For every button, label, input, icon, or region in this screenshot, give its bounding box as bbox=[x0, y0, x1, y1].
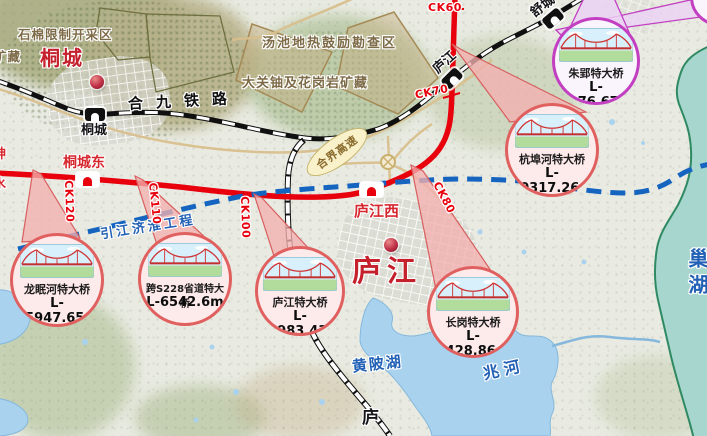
railway-planning-map: 合界高速 石棉限制开采区 矿藏 桐城 合九铁路 桐城 桐城东 汤池地热鼓励勘查区… bbox=[0, 0, 707, 436]
bridge-length: L-1076.67m bbox=[555, 80, 637, 105]
tongchengdong-station-icon bbox=[76, 172, 99, 187]
bridge-name: 朱郢特大桥 bbox=[555, 65, 637, 81]
pond bbox=[233, 389, 239, 395]
bridge-callout-hangbuhe: 杭埠河特大桥 L-20317.26m bbox=[505, 103, 599, 197]
bridge-callout-lujiang: 庐江特大桥 L-20983.43m bbox=[255, 246, 345, 336]
bridge-name: 杭埠河特大桥 bbox=[508, 151, 596, 167]
pond bbox=[210, 345, 215, 350]
bridge-illustration bbox=[148, 243, 222, 277]
bridge-length: L-15947.65m bbox=[13, 296, 101, 326]
lujiangxi-station-label: 庐江西 bbox=[354, 204, 399, 220]
bridge-name: 庐江特大桥 bbox=[258, 294, 342, 310]
bridge-length: L-5428.86m bbox=[430, 329, 516, 358]
partial-left-label-2: 水 bbox=[0, 178, 6, 192]
partial-left-label-1: 神 bbox=[0, 148, 6, 162]
bridge-name: 长岗特大桥 bbox=[430, 314, 516, 330]
pond bbox=[522, 250, 527, 255]
bridge-illustration bbox=[20, 244, 94, 278]
pond bbox=[478, 230, 483, 235]
chaohu-lake-label: 巢湖 bbox=[686, 248, 707, 300]
bridge-callout-s228: 跨S228省道特大桥 L-6542.6m bbox=[138, 232, 232, 326]
pond bbox=[641, 141, 645, 145]
shimian-area-label: 石棉限制开采区 bbox=[18, 28, 113, 41]
pond bbox=[82, 339, 88, 345]
tongcheng-station-icon bbox=[85, 108, 105, 121]
bridge-callout-changgang: 长岗特大桥 L-5428.86m bbox=[427, 266, 519, 358]
bridge-callout-zhuying: 朱郢特大桥 L-1076.67m bbox=[552, 17, 640, 105]
bridge-length: L-20317.26m bbox=[508, 166, 596, 196]
kuangcang-partial-label: 矿藏 bbox=[0, 50, 21, 63]
mining-boundary bbox=[146, 14, 234, 92]
tongchengdong-station-label: 桐城东 bbox=[63, 156, 105, 171]
lujiangxi-station-icon bbox=[360, 182, 383, 197]
ck100-label: CK100 bbox=[238, 196, 251, 238]
lake-shape bbox=[0, 398, 28, 436]
ck120-label: CK120 bbox=[62, 180, 75, 222]
bridge-length: L-20983.43m bbox=[258, 309, 342, 336]
tangchi-area-label: 汤池地热鼓励勘查区 bbox=[262, 37, 397, 51]
pond bbox=[609, 119, 615, 125]
bridge-illustration bbox=[263, 257, 337, 291]
tongcheng-station-label: 桐城 bbox=[81, 124, 107, 138]
bridge-illustration bbox=[515, 114, 589, 148]
pond bbox=[194, 418, 199, 423]
partial-railway-label: 庐 bbox=[362, 410, 379, 428]
ck60-label: CK60 bbox=[428, 2, 462, 14]
zhaohe-river bbox=[552, 336, 660, 346]
bridge-name: 龙眠河特大桥 bbox=[13, 281, 101, 297]
pond bbox=[319, 399, 325, 405]
bridge-illustration bbox=[436, 277, 510, 311]
bridge-callout-longmianhe: 龙眠河特大桥 L-15947.65m bbox=[10, 233, 104, 327]
lujiang-city-dot bbox=[384, 238, 398, 252]
daguan-area-label: 大关铀及花岗岩矿藏 bbox=[242, 77, 368, 91]
chaohu-lake-shape bbox=[655, 45, 707, 436]
tongcheng-city-label: 桐城 bbox=[40, 48, 84, 69]
bridge-illustration bbox=[559, 28, 633, 62]
tongcheng-city-dot bbox=[90, 75, 104, 89]
bridge-length: L-6542.6m bbox=[141, 295, 229, 310]
lujiang-city-label: 庐江 bbox=[352, 256, 422, 286]
pond bbox=[582, 260, 587, 265]
